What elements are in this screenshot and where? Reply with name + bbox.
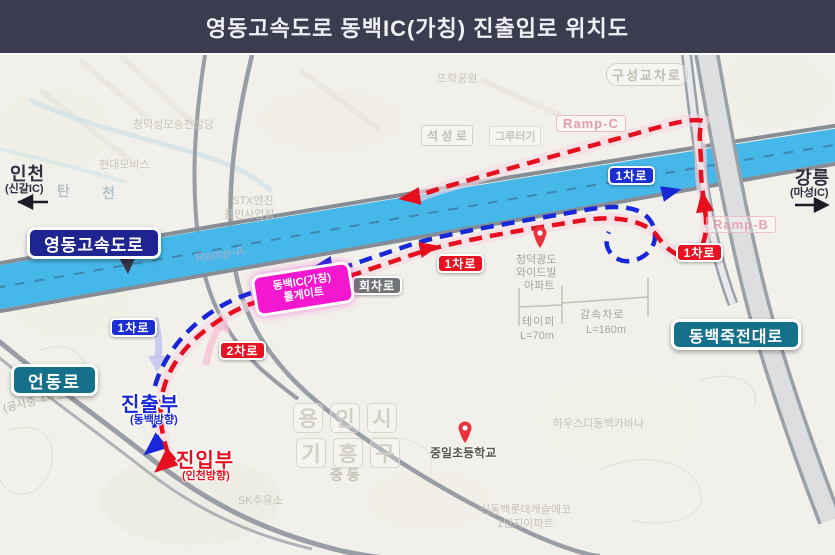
lane2-badge: 2차로 <box>219 341 266 360</box>
east-arrow-icon <box>815 199 827 211</box>
giheung-char: 기 <box>296 438 326 468</box>
ramp-c-tag: Ramp-C <box>556 115 626 132</box>
apt-label-1: 청덕광도 <box>516 253 556 266</box>
taper-value: L=70m <box>520 330 554 342</box>
lane1-badge-red-mid: 1차로 <box>437 254 484 273</box>
jungdong-label: 중 동 <box>330 467 360 483</box>
taper-label: 테이퍼 <box>522 315 555 328</box>
stx-label-1: STX엔진 <box>232 194 274 207</box>
yongin-char: 시 <box>367 403 397 433</box>
sk-gas-label: SK주유소 <box>238 494 283 507</box>
cathedral-label: 청덕성모승천성당 <box>133 117 214 131</box>
west-arrow-icon <box>20 196 32 208</box>
school-pin-icon <box>459 422 472 444</box>
lane1-badge-blue-left: 1차로 <box>110 318 157 337</box>
yongin-char: 인 <box>330 403 360 433</box>
map-canvas: Ramp-A <box>0 0 835 555</box>
yongin-char: 용 <box>293 403 323 433</box>
apartment-pin-icon <box>534 227 547 249</box>
apt-label-2: 와이드빌 <box>516 266 556 279</box>
title-bar: 영동고속도로 동백IC(가칭) 진출입로 위치도 <box>0 0 835 55</box>
ramp-b-tag: Ramp-B <box>706 216 776 233</box>
seokseong-ro-label: 석 성 로 <box>421 125 473 146</box>
gruteogi-label: 그루터기 <box>489 126 541 146</box>
turnaround-badge: 회차로 <box>352 276 402 295</box>
decel-label: 감속차로 <box>580 308 624 321</box>
west-ic-label: (신갈IC) <box>5 180 44 196</box>
location-map-page: Ramp-A <box>0 0 835 555</box>
stx-label-2: 용인사업장 <box>224 208 275 221</box>
yongin-si-label: 용인시 <box>293 403 404 433</box>
exit-point-sub: (동백방향) <box>130 411 178 427</box>
entry-point-sub: (인천방향) <box>182 467 230 483</box>
cabana-label: 하우스디동백카바나 <box>553 416 644 430</box>
guseong-junction-label: 구성교차로 <box>606 63 688 86</box>
jukjeon-daero-box: 동백죽전대로 <box>671 319 801 350</box>
giheung-char: 흥 <box>333 438 363 468</box>
lane1-badge-red-loop: 1차로 <box>676 243 723 262</box>
giheung-gu-label: 기흥구 <box>296 438 407 468</box>
decel-value: L=160m <box>586 324 626 336</box>
lotte-label-1: 신동백롯데캐슬에코 <box>480 503 571 516</box>
apt-label-3: 아파트 <box>524 279 554 292</box>
giheung-char: 구 <box>370 438 400 468</box>
tan-label: 탄 <box>57 183 70 199</box>
cheon-label: 천 <box>102 185 115 201</box>
ddeurak-park-label: 뜨락공원 <box>437 72 477 85</box>
east-ic-label: (마성IC) <box>790 184 829 200</box>
hyundai-mobis-label: 현대모비스 <box>99 158 150 171</box>
expressway-box: 영동고속도로 <box>27 227 161 259</box>
eondong-ro-box: 언동로 <box>11 364 98 396</box>
page-title: 영동고속도로 동백IC(가칭) 진출입로 위치도 <box>206 11 629 43</box>
lane1-badge-blue-loop: 1차로 <box>608 166 655 185</box>
lotte-label-2: 1단지아파트 <box>497 517 554 530</box>
school-label: 중일초등학교 <box>430 444 496 461</box>
